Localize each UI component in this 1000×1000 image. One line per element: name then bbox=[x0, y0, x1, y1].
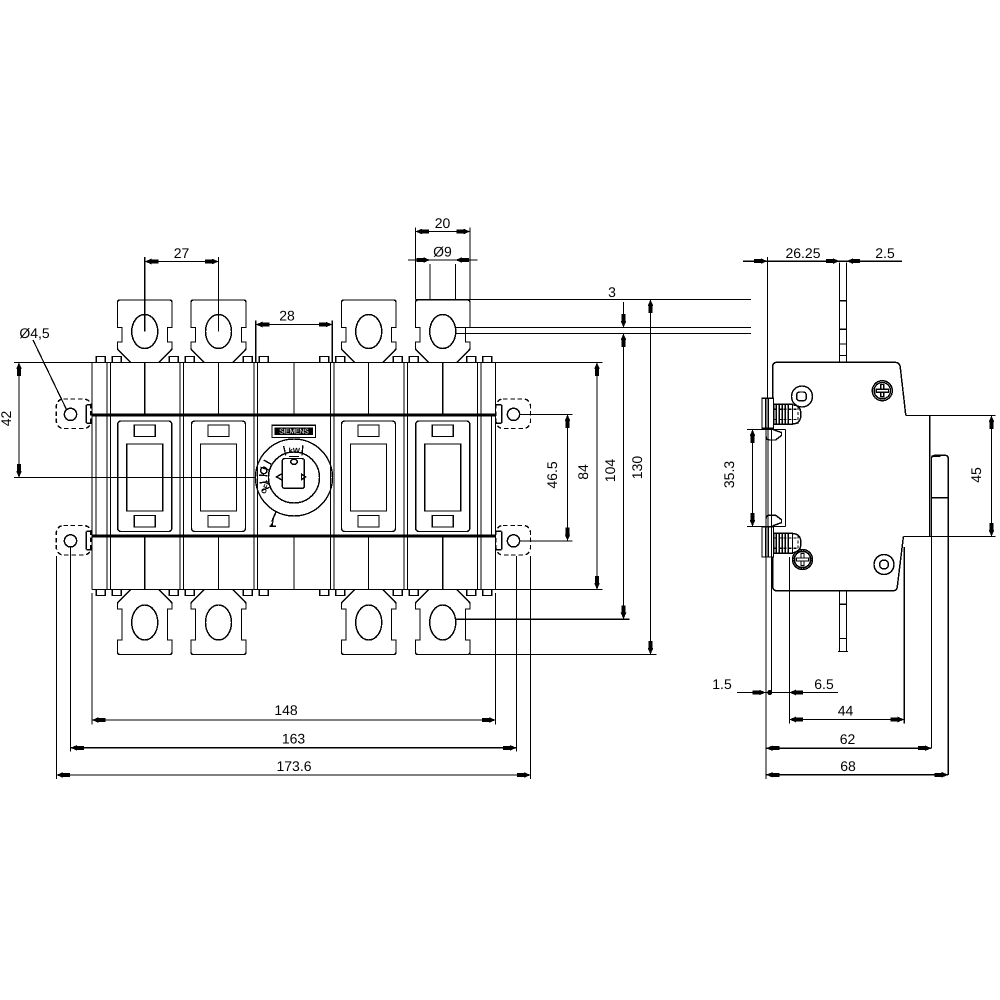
svg-text:20: 20 bbox=[435, 215, 451, 231]
svg-text:6.5: 6.5 bbox=[814, 676, 834, 692]
svg-text:104: 104 bbox=[602, 459, 618, 483]
svg-text:26.25: 26.25 bbox=[785, 245, 820, 261]
svg-text:SIEMENS: SIEMENS bbox=[279, 429, 309, 436]
svg-text:84: 84 bbox=[575, 464, 591, 480]
svg-text:46.5: 46.5 bbox=[544, 461, 560, 488]
svg-text:45: 45 bbox=[968, 467, 984, 483]
svg-text:2.5: 2.5 bbox=[875, 245, 895, 261]
svg-text:28: 28 bbox=[279, 308, 295, 324]
svg-text:62: 62 bbox=[840, 731, 856, 747]
svg-text:68: 68 bbox=[840, 758, 856, 774]
svg-text:173.6: 173.6 bbox=[276, 758, 311, 774]
svg-text:44: 44 bbox=[838, 703, 854, 719]
svg-text:27: 27 bbox=[174, 245, 190, 261]
svg-text:1.5: 1.5 bbox=[712, 676, 732, 692]
svg-text:130: 130 bbox=[629, 456, 645, 480]
svg-text:kW: kW bbox=[289, 446, 301, 455]
svg-text:35.3: 35.3 bbox=[721, 461, 737, 488]
svg-text:Ø9: Ø9 bbox=[433, 244, 452, 260]
svg-text:163: 163 bbox=[282, 731, 306, 747]
svg-text:148: 148 bbox=[274, 702, 298, 718]
svg-text:42: 42 bbox=[0, 411, 14, 427]
svg-text:3: 3 bbox=[608, 284, 616, 300]
svg-text:Ø4,5: Ø4,5 bbox=[19, 325, 50, 341]
